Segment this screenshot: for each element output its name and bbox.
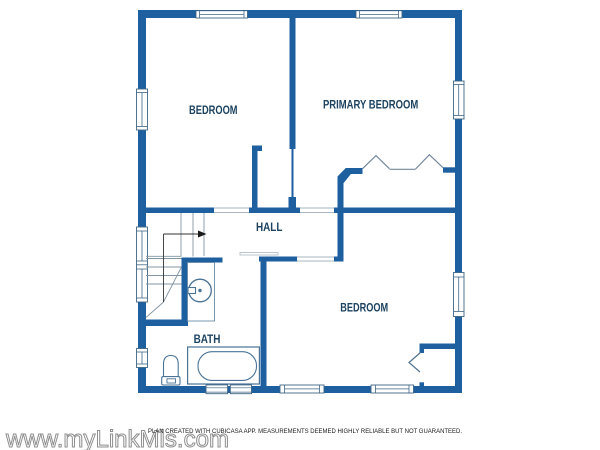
svg-text:BEDROOM: BEDROOM [340, 302, 388, 314]
svg-text:BEDROOM: BEDROOM [189, 105, 238, 117]
svg-text:PRIMARY BEDROOM: PRIMARY BEDROOM [323, 99, 418, 111]
svg-text:PLAN CREATED WITH CUBICASA APP: PLAN CREATED WITH CUBICASA APP. MEASUREM… [148, 429, 462, 435]
svg-text:BATH: BATH [194, 334, 221, 346]
svg-text:HALL: HALL [256, 222, 283, 234]
